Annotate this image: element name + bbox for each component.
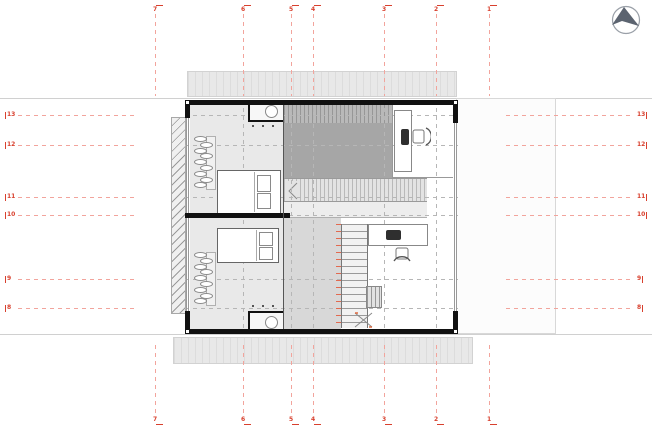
grid-label-right: 11: [637, 194, 645, 200]
grid-label-right: 13: [637, 112, 645, 118]
wall-interior: [283, 105, 284, 329]
elevator-shaft: [366, 286, 382, 308]
bathroom-upper: [248, 103, 284, 122]
grid-label-top: 3: [382, 7, 386, 13]
hanger-icon: [194, 287, 207, 293]
grid-line-horizontal-right: [506, 197, 633, 198]
north-arrow-icon: [607, 3, 645, 39]
wall-corner-marker: [186, 101, 189, 104]
bed-upper: [217, 170, 281, 214]
wall-middle-party: [185, 213, 290, 218]
grid-line-horizontal-left: [18, 197, 137, 198]
grid-label-left: 11: [7, 194, 15, 200]
grid-line-vertical-top: [384, 14, 385, 96]
grid-line-horizontal-left: [18, 215, 137, 216]
pillow: [259, 232, 273, 246]
wall-bottom: [185, 329, 458, 334]
grid-label-left: 9: [7, 276, 11, 282]
door-dot: [272, 125, 274, 127]
grid-line-horizontal-left: [18, 279, 137, 280]
grid-line-vertical-top: [489, 14, 490, 96]
pillow: [257, 193, 271, 209]
grid-label-left: 12: [7, 142, 15, 148]
grid-label-left: 13: [7, 112, 15, 118]
grid-line-vertical-top: [243, 14, 244, 96]
laptop-icon: [386, 230, 401, 240]
grid-label-bottom: 6: [241, 417, 245, 423]
grid-label-bottom: 7: [153, 417, 157, 423]
chair-icon: [411, 125, 431, 148]
grid-label-right: 10: [637, 212, 645, 218]
bathroom-lower: [248, 311, 284, 331]
grid-label-top: 5: [289, 7, 293, 13]
grid-line-vertical-top: [313, 14, 314, 96]
grid-line-vertical-top: [155, 14, 156, 96]
plan-grid-line-horizontal: [185, 279, 458, 280]
grid-line-horizontal-right: [506, 145, 633, 146]
wall-corner-marker: [454, 101, 457, 104]
wall-top: [185, 100, 458, 105]
grid-line-vertical-bottom: [291, 345, 292, 413]
door-dot: [262, 305, 264, 307]
grid-line-horizontal-left: [18, 308, 137, 309]
grid-label-bottom: 4: [311, 417, 315, 423]
washbasin-upper: [265, 105, 278, 118]
stair-break-mark: [353, 311, 375, 329]
grid-line-vertical-bottom: [155, 345, 156, 413]
plan-grid-line-vertical: [313, 100, 314, 334]
grid-line-horizontal-left: [18, 115, 137, 116]
grid-line-horizontal-right: [506, 279, 633, 280]
washbasin-lower: [265, 316, 278, 329]
grid-line-vertical-bottom: [313, 345, 314, 413]
building-plan: [185, 100, 458, 334]
hanger-icon: [200, 258, 213, 264]
wardrobe-lower: [193, 252, 219, 306]
hanger-icon: [200, 142, 213, 148]
grid-label-right: 9: [637, 276, 641, 282]
plan-grid-line-vertical: [436, 100, 437, 334]
laptop-icon: [401, 129, 409, 145]
door-dot: [272, 305, 274, 307]
grid-label-bottom: 5: [289, 417, 293, 423]
grid-line-vertical-top: [291, 14, 292, 96]
grid-label-top: 2: [434, 7, 438, 13]
grid-line-vertical-bottom: [243, 345, 244, 413]
grid-line-vertical-bottom: [436, 345, 437, 413]
grid-label-bottom: 3: [382, 417, 386, 423]
grid-line-vertical-bottom: [489, 345, 490, 413]
grid-label-left: 8: [7, 305, 11, 311]
wall-corner-marker: [186, 330, 189, 333]
grid-label-top: 4: [311, 7, 315, 13]
grid-line-horizontal-left: [18, 145, 137, 146]
grid-label-bottom: 1: [487, 417, 491, 423]
bed-line: [256, 230, 257, 261]
plan-grid-line-horizontal: [185, 308, 458, 309]
door-dot: [252, 305, 254, 307]
grid-label-bottom: 2: [434, 417, 438, 423]
grid-line-horizontal-right: [506, 115, 633, 116]
plan-grid-line-vertical: [384, 100, 385, 334]
grid-label-top: 7: [153, 7, 157, 13]
grid-line-horizontal-right: [506, 215, 633, 216]
grid-label-left: 10: [7, 212, 15, 218]
pillow: [259, 247, 273, 260]
grid-label-right: 12: [637, 142, 645, 148]
grid-line-vertical-top: [436, 14, 437, 96]
grid-label-right: 8: [637, 305, 641, 311]
bed-line: [254, 172, 255, 212]
grid-label-top: 6: [241, 7, 245, 13]
grid-line-horizontal-right: [506, 308, 633, 309]
wall-corner-marker: [454, 330, 457, 333]
plan-grid-line-horizontal: [185, 115, 458, 116]
grid-line-vertical-bottom: [384, 345, 385, 413]
chair-icon: [391, 246, 413, 266]
pillow: [257, 175, 271, 192]
floor-plan-drawing: 7766554433221113131212111110109988: [0, 0, 652, 435]
plan-grid-line-vertical: [291, 100, 292, 334]
door-dot: [252, 125, 254, 127]
door-dot: [262, 125, 264, 127]
window-right: [454, 123, 457, 311]
hanger-icon: [194, 171, 207, 177]
bed-lower: [217, 228, 279, 263]
grid-label-top: 1: [487, 7, 491, 13]
wardrobe-upper: [193, 136, 219, 190]
